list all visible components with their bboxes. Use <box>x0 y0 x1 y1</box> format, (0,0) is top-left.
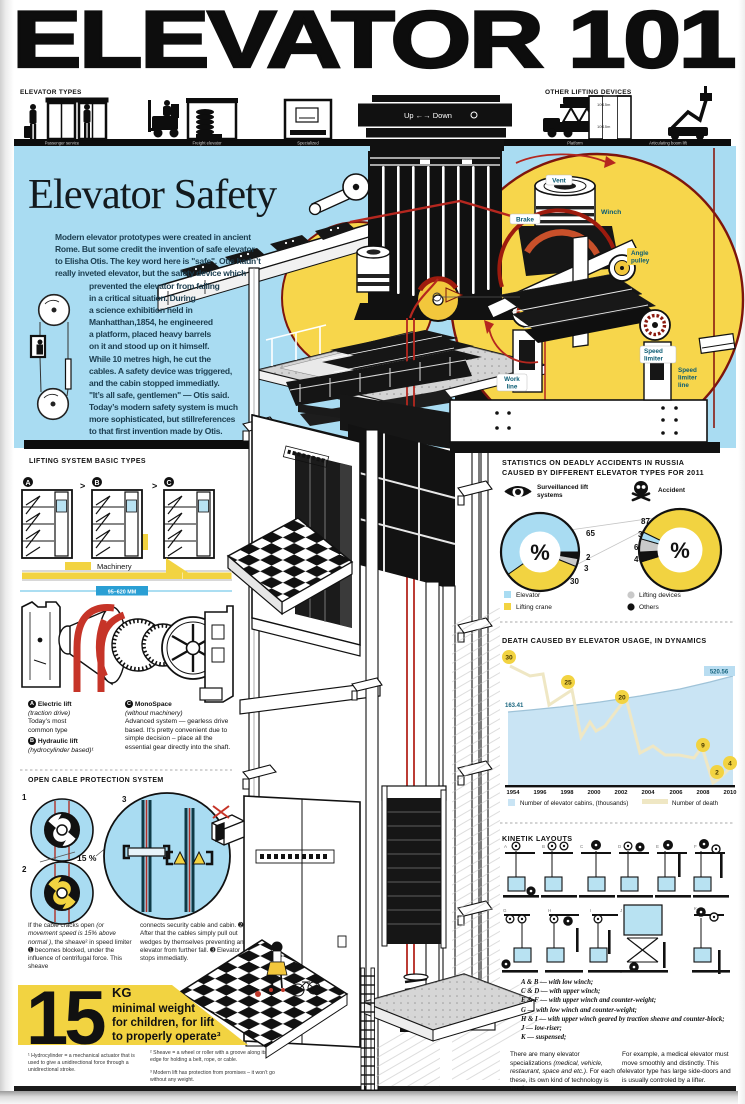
svg-text:10t15m: 10t15m <box>597 124 611 129</box>
svg-text:Winch: Winch <box>601 209 621 216</box>
svg-text:Elevator: Elevator <box>516 592 541 599</box>
svg-text:30: 30 <box>505 654 513 661</box>
svg-text:Work: Work <box>504 376 520 383</box>
svg-text:Others: Others <box>639 604 659 611</box>
svg-text:%: % <box>670 538 690 563</box>
svg-text:C: C <box>166 480 171 487</box>
svg-text:3: 3 <box>122 795 127 804</box>
svg-text:ELEVATOR TYPES: ELEVATOR TYPES <box>20 89 82 96</box>
svg-text:D: D <box>618 844 622 849</box>
svg-text:87: 87 <box>641 517 650 526</box>
svg-text:30: 30 <box>570 577 579 586</box>
svg-text:2006: 2006 <box>670 790 684 796</box>
svg-text:1: 1 <box>22 793 27 802</box>
svg-text:9: 9 <box>701 742 705 749</box>
svg-text:B: B <box>542 844 545 849</box>
svg-text:Speed: Speed <box>678 367 697 374</box>
svg-text:Platform: Platform <box>567 141 583 146</box>
svg-text:2004: 2004 <box>642 790 656 796</box>
svg-text:E: E <box>656 844 659 849</box>
svg-text:Lifting crane: Lifting crane <box>516 604 552 611</box>
svg-text:2008: 2008 <box>697 790 711 796</box>
svg-text:Speed: Speed <box>644 348 663 355</box>
svg-text:limiter: limiter <box>678 375 697 382</box>
svg-text:2: 2 <box>586 553 591 562</box>
svg-text:line: line <box>507 384 518 391</box>
svg-text:1954: 1954 <box>507 790 521 796</box>
svg-text:Lifting devices: Lifting devices <box>639 592 681 599</box>
svg-text:20: 20 <box>618 694 626 701</box>
svg-text:line: line <box>678 382 689 389</box>
svg-text:H: H <box>548 908 551 913</box>
svg-text:pulley: pulley <box>631 258 650 265</box>
svg-text:for children, for lift: for children, for lift <box>112 1017 214 1029</box>
svg-text:1998: 1998 <box>561 790 575 796</box>
svg-text:2: 2 <box>22 865 27 874</box>
svg-text:520.56: 520.56 <box>710 670 729 676</box>
svg-text:minimal weight: minimal weight <box>112 1003 195 1015</box>
svg-text:G: G <box>503 908 507 913</box>
svg-text:Angle: Angle <box>631 250 649 257</box>
svg-text:4: 4 <box>728 760 732 767</box>
svg-text:2000: 2000 <box>588 790 601 796</box>
svg-text:Passenger service: Passenger service <box>45 141 80 146</box>
svg-text:OTHER LIFTING DEVICES: OTHER LIFTING DEVICES <box>545 89 632 96</box>
svg-text:15: 15 <box>26 976 105 1061</box>
svg-text:25: 25 <box>564 679 572 686</box>
svg-text:2: 2 <box>715 769 719 776</box>
svg-text:3: 3 <box>638 530 643 539</box>
svg-text:2002: 2002 <box>615 790 628 796</box>
svg-text:15 %: 15 % <box>77 853 97 863</box>
svg-text:I: I <box>590 908 591 913</box>
svg-text:3: 3 <box>584 564 589 573</box>
svg-text:K: K <box>694 906 697 911</box>
svg-text:Freight elevator: Freight elevator <box>192 141 222 146</box>
svg-text:95–620 MM: 95–620 MM <box>108 589 137 595</box>
svg-text:Articulating boom lift: Articulating boom lift <box>649 141 688 146</box>
svg-text:2010: 2010 <box>724 790 737 796</box>
svg-text:4: 4 <box>634 555 639 564</box>
svg-text:J: J <box>620 908 622 913</box>
svg-text:65: 65 <box>586 529 595 538</box>
svg-text:Up ←→ Down: Up ←→ Down <box>404 111 452 120</box>
svg-text:F: F <box>694 844 697 849</box>
svg-text:Machinery: Machinery <box>97 562 132 571</box>
svg-text:A: A <box>504 844 507 849</box>
svg-text:1996: 1996 <box>534 790 548 796</box>
svg-text:A: A <box>25 480 30 487</box>
svg-text:163.41: 163.41 <box>505 703 524 709</box>
svg-text:>: > <box>80 481 85 491</box>
svg-text:6: 6 <box>634 543 639 552</box>
svg-text:limiter: limiter <box>644 356 663 363</box>
svg-text:Brake: Brake <box>516 217 534 224</box>
svg-text:10t15m: 10t15m <box>597 102 611 107</box>
svg-text:>: > <box>152 481 157 491</box>
svg-text:KG: KG <box>112 985 132 1000</box>
svg-text:Number of elevator cabins, (th: Number of elevator cabins, (thousands) <box>520 800 628 807</box>
svg-text:%: % <box>530 540 550 565</box>
svg-text:B: B <box>94 480 99 487</box>
svg-text:Number of death: Number of death <box>672 800 719 807</box>
svg-text:C: C <box>580 844 584 849</box>
svg-text:to properly operate³: to properly operate³ <box>112 1031 221 1043</box>
svg-text:Specialized: Specialized <box>297 141 319 146</box>
svg-text:Vent: Vent <box>552 178 567 185</box>
